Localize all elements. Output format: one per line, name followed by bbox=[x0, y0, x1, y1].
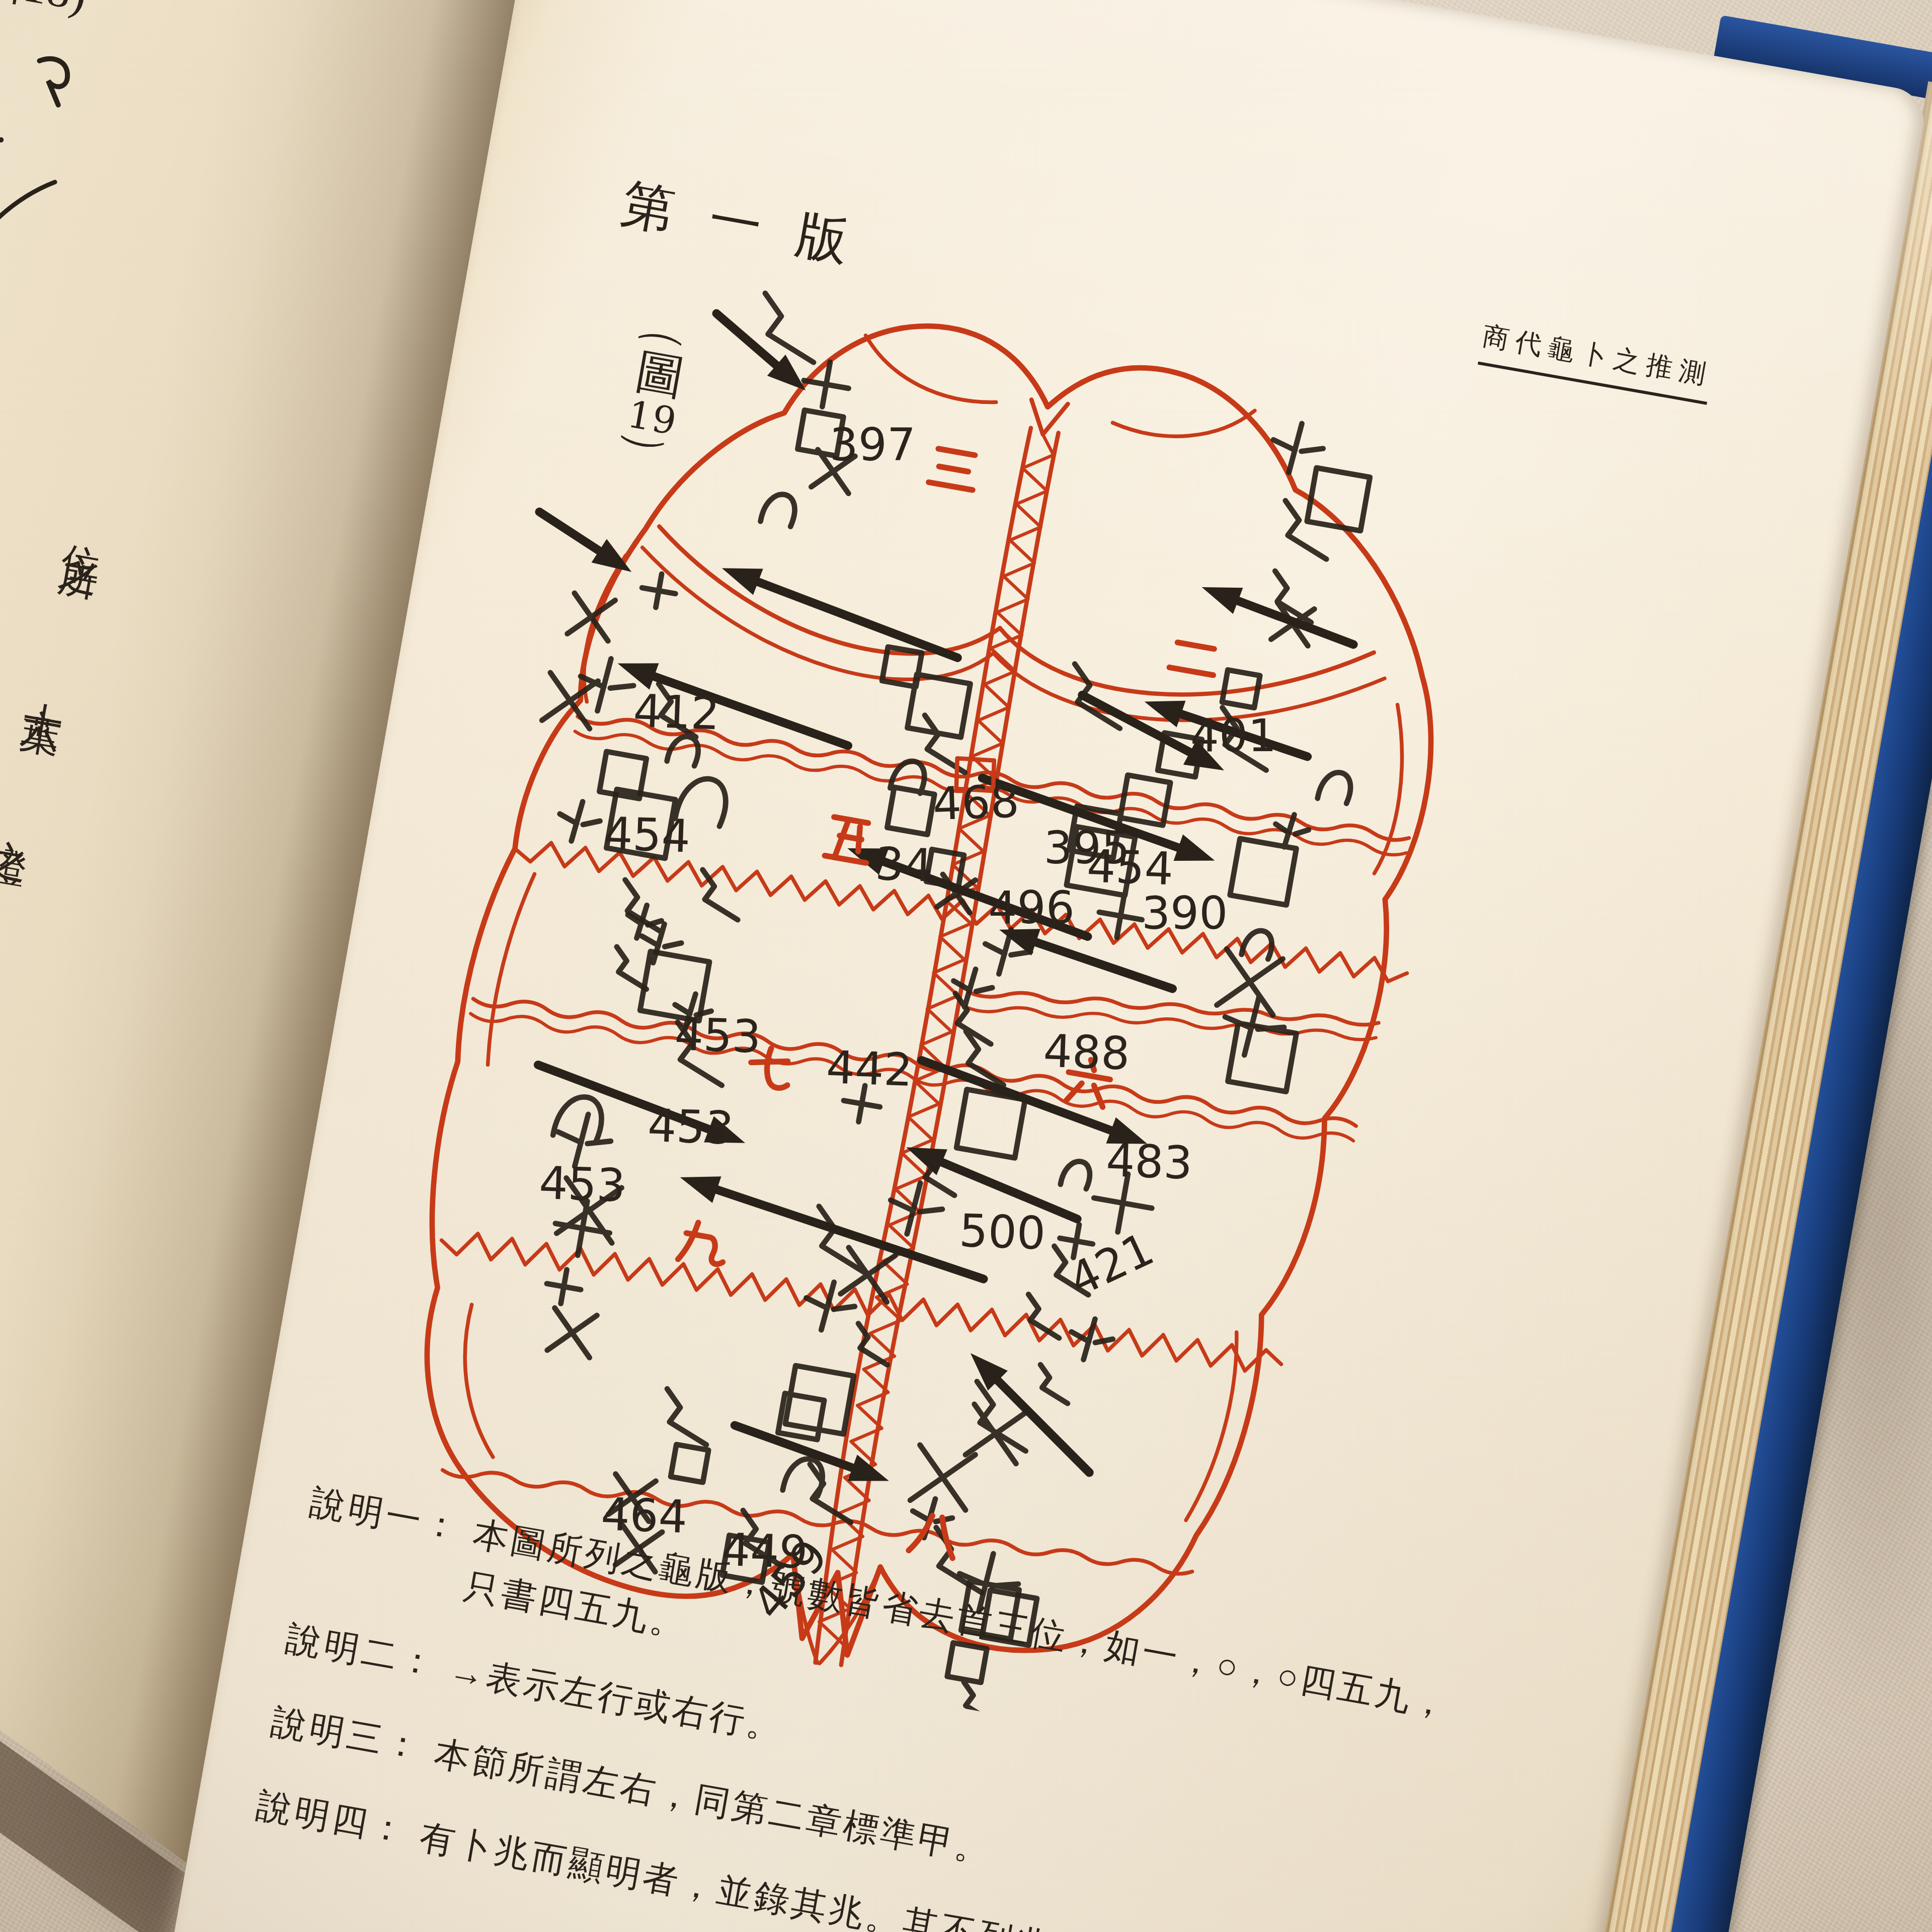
plate-number: 34 bbox=[874, 838, 934, 892]
transverse-suture bbox=[472, 967, 1357, 1158]
note-label: 說明三： bbox=[268, 1698, 439, 1774]
direction-arrow-head bbox=[718, 562, 763, 596]
plate-number: 397 bbox=[830, 419, 916, 471]
direction-arrow bbox=[1228, 599, 1357, 645]
open-book: 圖18) 位之所十六葉之證部 第一版 （ 圖 19 ） 商代龜卜之推測 bbox=[0, 0, 1932, 1932]
plastron-red-line bbox=[627, 547, 1001, 697]
note-label: 說明四： bbox=[253, 1782, 425, 1857]
direction-arrow bbox=[980, 1376, 1103, 1473]
plate-number: 390 bbox=[1142, 887, 1228, 939]
direction-arrow-head bbox=[1174, 834, 1219, 868]
plate-number: 453 bbox=[674, 1008, 762, 1063]
plate-number: 454 bbox=[603, 807, 691, 862]
photo-of-open-book: 圖18) 位之所十六葉之證部 第一版 （ 圖 19 ） 商代龜卜之推測 bbox=[0, 0, 1932, 1932]
left-page-fragment: 十六葉 bbox=[22, 667, 77, 697]
plastron-red-line bbox=[1112, 387, 1255, 451]
direction-arrow bbox=[534, 512, 610, 554]
direction-arrow-head bbox=[677, 1169, 721, 1203]
left-page-figure-caption: 圖18) bbox=[0, 0, 92, 27]
oracle-glyph-cluster bbox=[726, 293, 880, 535]
oracle-glyph-cluster bbox=[516, 1093, 636, 1358]
plate-number: 442 bbox=[825, 1041, 913, 1096]
plate-number: 496 bbox=[988, 881, 1075, 934]
direction-arrow-head bbox=[1141, 694, 1186, 728]
plate-number: 453 bbox=[538, 1157, 626, 1212]
plate-number: 453 bbox=[647, 1099, 735, 1155]
plastron-red-line bbox=[858, 336, 1004, 406]
section-numeral-二 bbox=[1169, 642, 1218, 675]
direction-arrow-head bbox=[1198, 581, 1243, 615]
left-page-sketch-fragment bbox=[0, 11, 123, 526]
plate-number: 500 bbox=[958, 1204, 1046, 1260]
plate-number: 468 bbox=[932, 775, 1020, 830]
left-page-fragment: 之證 bbox=[0, 804, 43, 828]
plastron-red-line bbox=[446, 1305, 519, 1457]
section-numeral-三 bbox=[929, 448, 979, 490]
note-label: 說明二： bbox=[282, 1615, 454, 1690]
plate-number: 488 bbox=[1042, 1025, 1131, 1080]
plate-number: 412 bbox=[632, 685, 720, 740]
left-page-fragment: 位之所 bbox=[60, 511, 116, 541]
plate-number: 401 bbox=[1190, 709, 1277, 762]
direction-arrow bbox=[1026, 940, 1177, 989]
section-numeral-九 bbox=[678, 1220, 729, 1267]
direction-arrow bbox=[703, 1187, 991, 1279]
plastron-red-line bbox=[1186, 1329, 1242, 1524]
plate-number: 483 bbox=[1105, 1134, 1193, 1189]
